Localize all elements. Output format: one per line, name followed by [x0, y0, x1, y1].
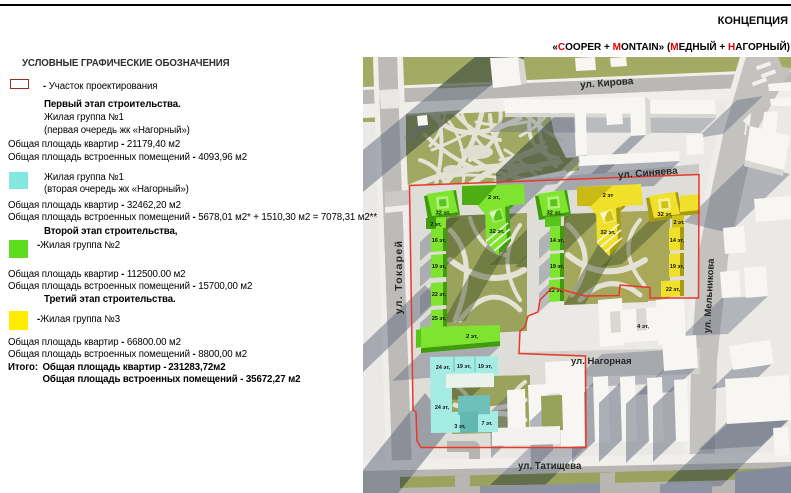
svg-text:19 эт,: 19 эт,: [550, 264, 565, 270]
svg-text:2 эт,: 2 эт,: [430, 222, 442, 228]
svg-text:32 эт,: 32 эт,: [600, 230, 616, 236]
svg-text:14 эт,: 14 эт,: [670, 238, 685, 244]
svg-text:19 эт,: 19 эт,: [432, 264, 447, 270]
svg-text:22 эт,: 22 эт,: [432, 292, 447, 298]
svg-text:4 эт,: 4 эт,: [637, 324, 649, 330]
svg-text:2 эт: 2 эт: [603, 193, 614, 199]
svg-text:2 эт,: 2 эт,: [466, 334, 478, 340]
svg-text:25 эт,: 25 эт,: [432, 316, 447, 322]
svg-text:ул. Нагорная: ул. Нагорная: [571, 356, 632, 367]
svg-text:ул. Татищева: ул. Татищева: [518, 461, 582, 472]
svg-text:16 эт,: 16 эт,: [432, 238, 447, 244]
svg-text:19 эт,: 19 эт,: [457, 364, 472, 370]
svg-text:7 эт.: 7 эт.: [481, 421, 493, 427]
svg-text:24 эт,: 24 эт,: [435, 405, 450, 411]
svg-text:32 эт.: 32 эт.: [546, 211, 562, 217]
svg-text:2 эт.: 2 эт.: [673, 220, 685, 226]
svg-text:32 эт.: 32 эт.: [435, 211, 451, 217]
svg-text:32 эт,: 32 эт,: [489, 229, 505, 235]
svg-text:24 эт,: 24 эт,: [436, 365, 451, 371]
svg-text:19 эт,: 19 эт,: [478, 364, 493, 370]
svg-text:32 эт,: 32 эт,: [657, 212, 673, 218]
svg-text:ул. Токарей: ул. Токарей: [393, 240, 405, 314]
svg-text:22 эт,: 22 эт,: [666, 287, 681, 293]
svg-text:19 эт,: 19 эт,: [670, 264, 685, 270]
svg-text:3 эт,: 3 эт,: [454, 424, 466, 430]
svg-text:14 эт,: 14 эт,: [550, 238, 565, 244]
svg-text:2 эт,: 2 эт,: [488, 195, 500, 201]
